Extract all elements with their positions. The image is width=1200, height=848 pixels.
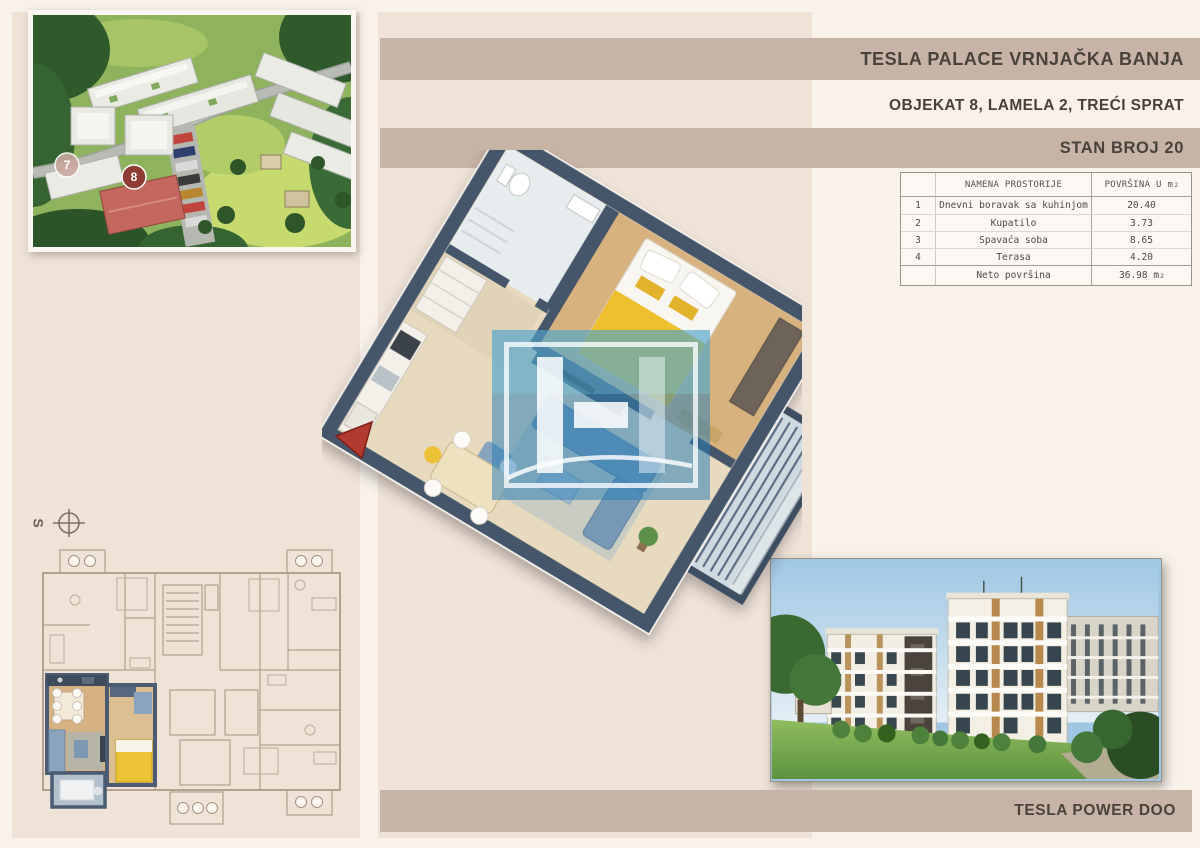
- project-title: TESLA PALACE VRNJAČKA BANJA: [860, 49, 1184, 70]
- compass: S: [34, 506, 104, 540]
- brochure-page: TESLA PALACE VRNJAČKA BANJA OBJEKAT 8, L…: [0, 0, 1200, 848]
- location-row: OBJEKAT 8, LAMELA 2, TREĆI SPRAT: [380, 86, 1200, 126]
- row3-num: 3: [901, 231, 935, 248]
- row2-area: 3.73: [1091, 214, 1191, 231]
- building-render-photo: [770, 558, 1162, 782]
- site-aerial-svg: 7 8: [33, 15, 351, 247]
- row4-area: 4.20: [1091, 248, 1191, 265]
- agency-watermark-logo: [492, 330, 710, 500]
- site-aerial-image: 7 8: [28, 10, 356, 252]
- building-render-svg: [771, 559, 1159, 779]
- svg-text:7: 7: [64, 158, 71, 172]
- row3-name: Spavaća soba: [935, 231, 1091, 248]
- area-table-name-header: NAMENA PROSTORIJE: [935, 173, 1091, 197]
- building-left: [825, 628, 938, 733]
- floor-locator-plan: [30, 540, 360, 842]
- total-row-spacer: [901, 265, 935, 285]
- building-7-badge: 7: [55, 153, 79, 177]
- total-value: 36.98 m2: [1091, 265, 1191, 285]
- unit-kitchen: [47, 675, 107, 686]
- row4-name: Terasa: [935, 248, 1091, 265]
- highlighted-unit: [47, 675, 155, 807]
- compass-south-label: S: [31, 518, 47, 527]
- row1-num: 1: [901, 197, 935, 214]
- row1-area: 20.40: [1091, 197, 1191, 214]
- building-far-right: [1065, 616, 1158, 711]
- row1-name: Dnevni boravak sa kuhinjom: [935, 197, 1091, 214]
- project-title-bar: TESLA PALACE VRNJAČKA BANJA: [380, 38, 1200, 80]
- unit-sofa: [49, 730, 65, 772]
- compass-icon: [49, 506, 89, 540]
- area-table-corner: [901, 173, 935, 197]
- svg-text:8: 8: [131, 170, 138, 184]
- row4-num: 4: [901, 248, 935, 265]
- footer-company-bar: TESLA POWER DOO: [380, 790, 1192, 832]
- watermark-swoosh: [504, 442, 696, 484]
- row3-area: 8.65: [1091, 231, 1191, 248]
- total-label: Neto površina: [935, 265, 1091, 285]
- footer-company: TESLA POWER DOO: [1014, 802, 1176, 820]
- location-line: OBJEKAT 8, LAMELA 2, TREĆI SPRAT: [889, 97, 1184, 115]
- row2-num: 2: [901, 214, 935, 231]
- building-center: [946, 577, 1069, 743]
- unit-wardrobe: [110, 687, 136, 697]
- area-table: NAMENA PROSTORIJE POVRŠINA U m2 1 Dnevni…: [900, 172, 1192, 286]
- row2-name: Kupatilo: [935, 214, 1091, 231]
- building-8-badge: 8: [122, 165, 146, 189]
- unit-number: STAN BROJ 20: [1060, 139, 1184, 158]
- area-table-area-header: POVRŠINA U m2: [1091, 173, 1191, 197]
